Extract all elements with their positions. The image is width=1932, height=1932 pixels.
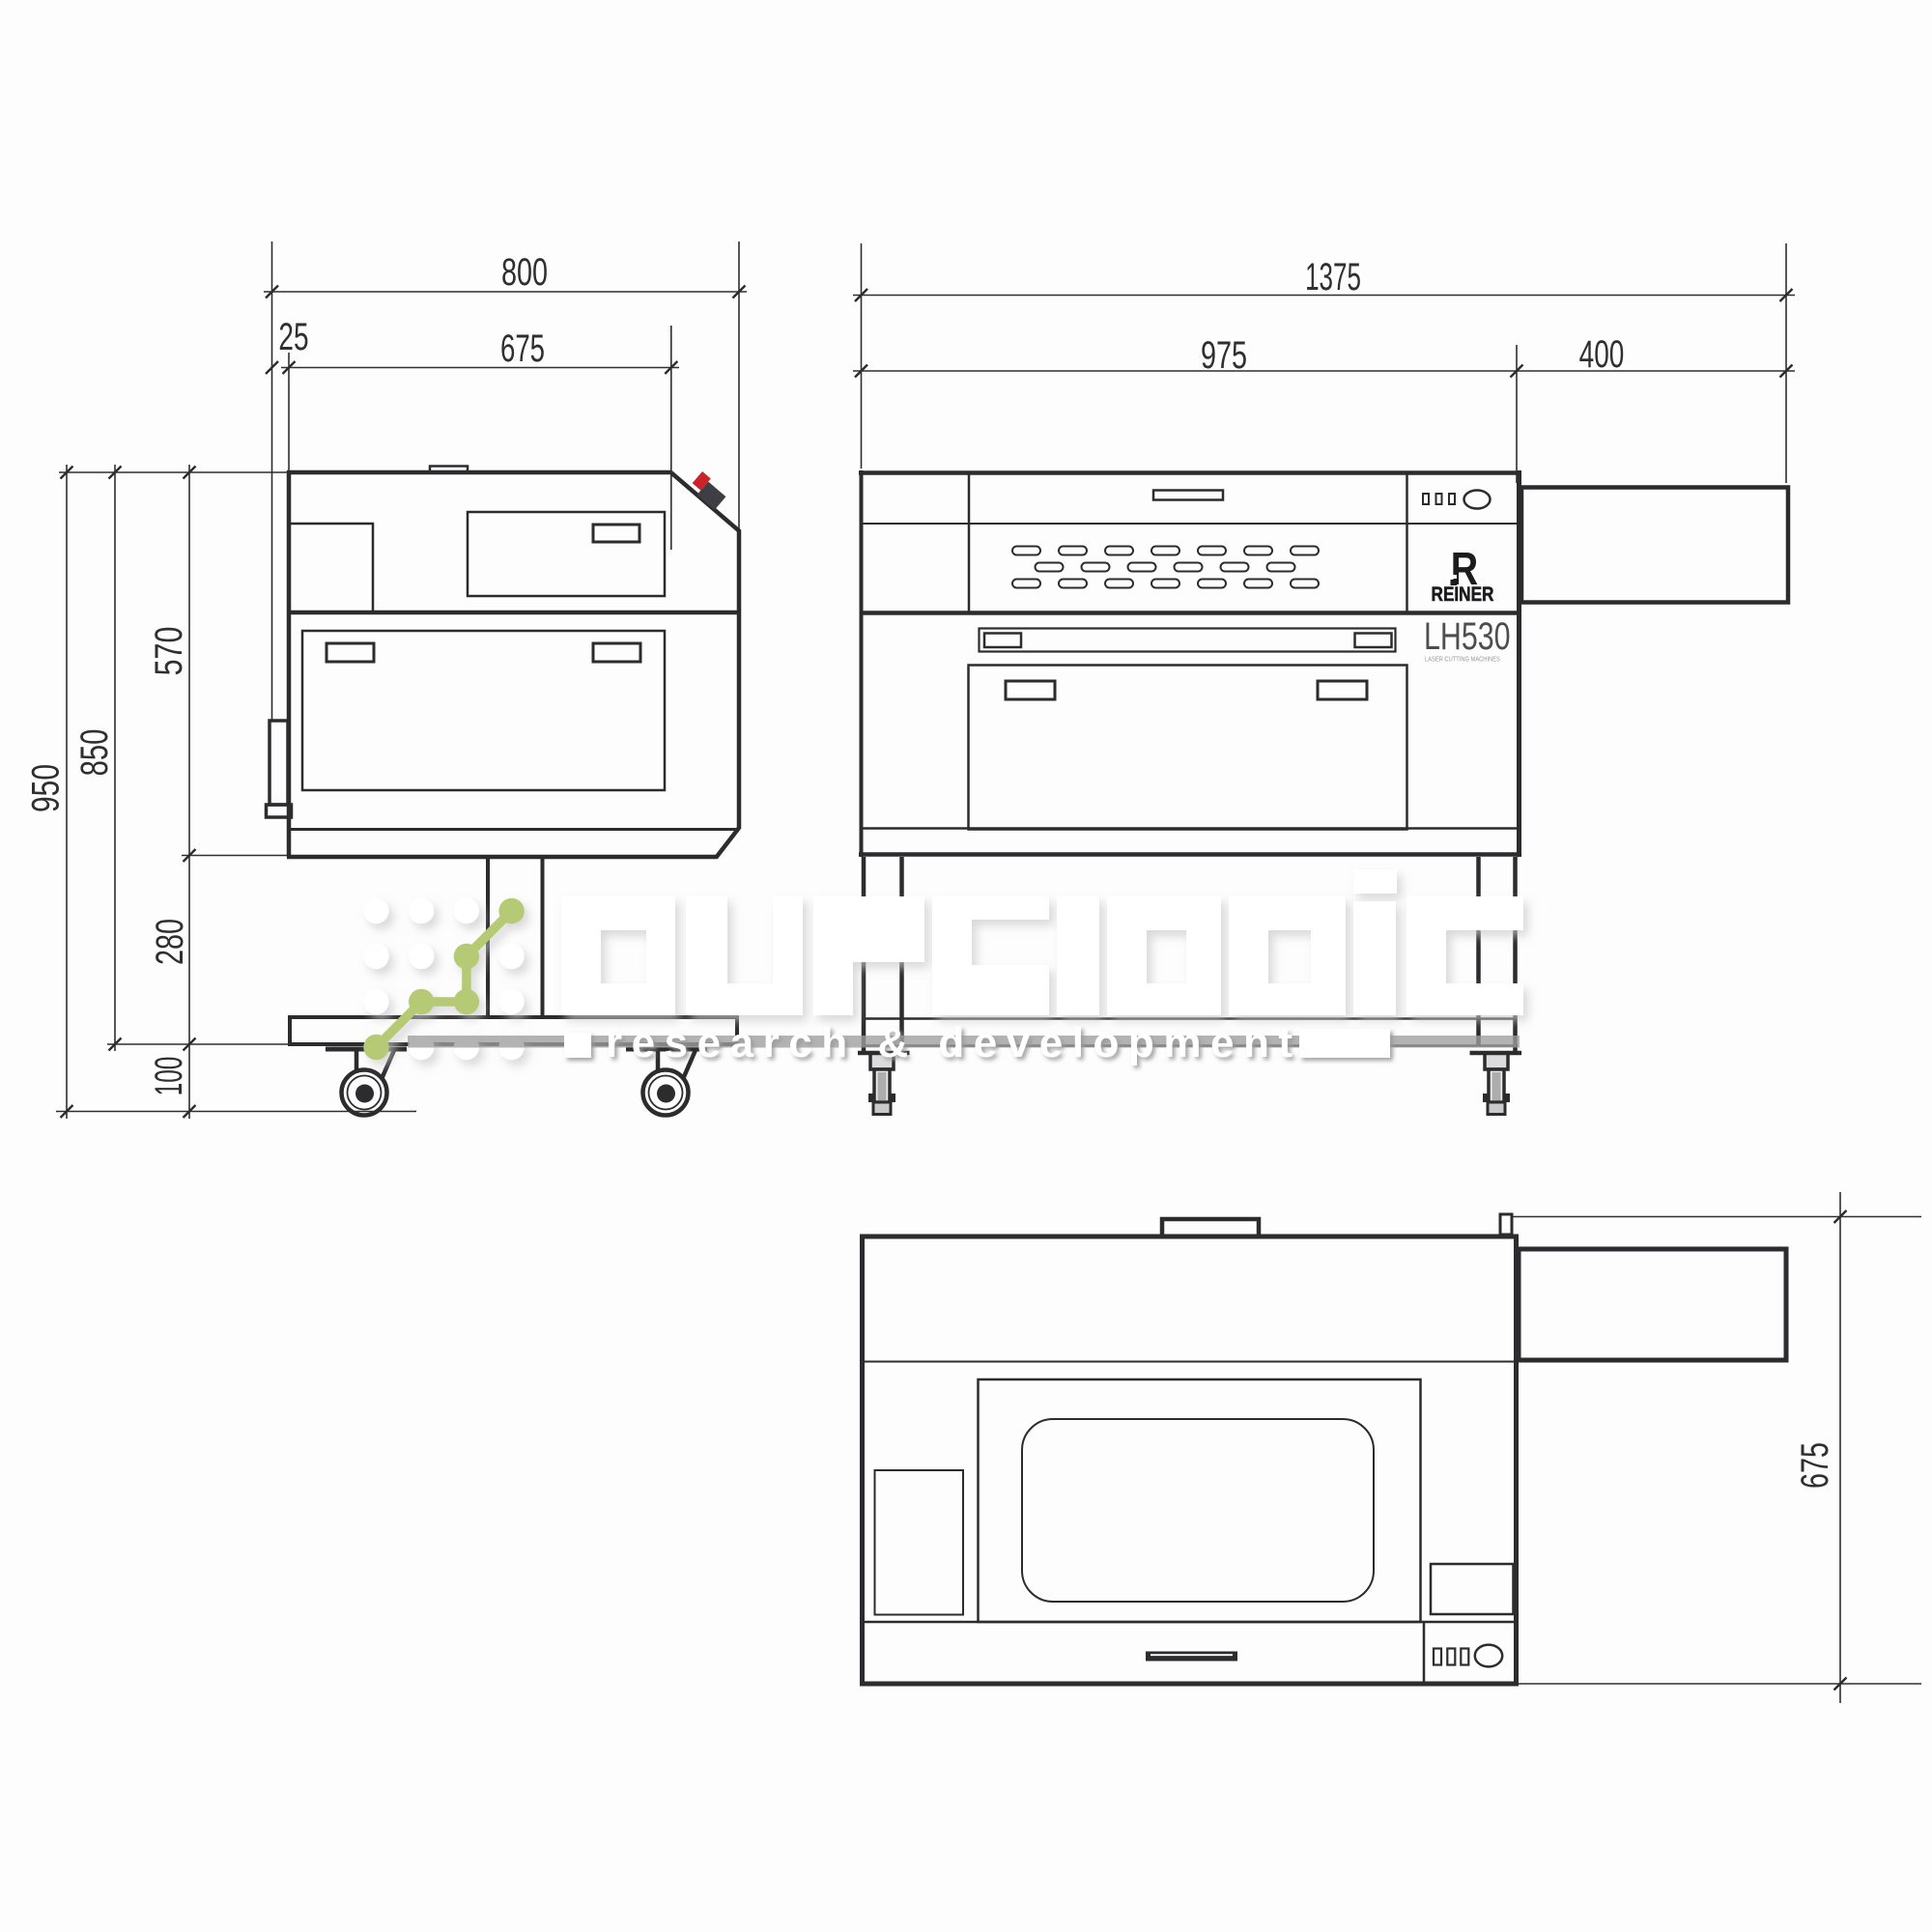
svg-text:400: 400 xyxy=(1579,333,1625,376)
svg-text:research & development: research & development xyxy=(606,1019,1293,1066)
svg-text:25: 25 xyxy=(278,316,308,358)
svg-text:LH530: LH530 xyxy=(1424,614,1511,658)
svg-text:975: 975 xyxy=(1201,333,1247,377)
svg-text:675: 675 xyxy=(500,327,545,370)
svg-text:100: 100 xyxy=(148,1057,191,1096)
svg-text:950: 950 xyxy=(24,764,67,812)
svg-text:850: 850 xyxy=(73,729,117,777)
svg-text:675: 675 xyxy=(1793,1442,1836,1489)
svg-text:REINER: REINER xyxy=(1432,582,1494,606)
svg-text:LASER CUTTING MACHINES: LASER CUTTING MACHINES xyxy=(1425,656,1500,664)
svg-text:570: 570 xyxy=(147,627,190,676)
svg-text:280: 280 xyxy=(148,919,191,965)
svg-text:800: 800 xyxy=(501,250,548,294)
svg-text:1375: 1375 xyxy=(1305,255,1361,298)
